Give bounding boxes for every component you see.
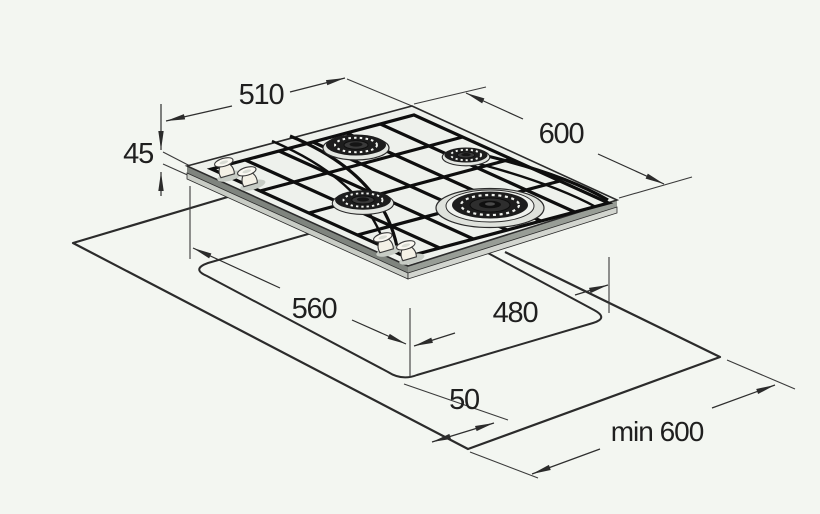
ext-min600-left [470,452,538,478]
burner-back-right [442,147,490,165]
dim-50-line [432,423,494,442]
burner-front-left [332,190,393,214]
dim-510-seg1 [166,106,232,121]
burner-cap [461,153,470,156]
dim-min600-seg1 [532,449,600,474]
burner-cap [357,197,369,201]
burner-cap [350,142,363,146]
dim-480-seg1 [414,333,455,346]
burner-back-left [323,135,389,161]
dim-560-seg2 [352,320,406,344]
dim-510-label: 510 [239,79,284,111]
dim-510-seg2 [290,78,345,92]
dim-50-label: 50 [449,384,479,416]
ext-600-top [414,87,486,104]
dim-600-seg1 [466,93,523,119]
dim-min600-seg2 [712,385,775,408]
dim-600-label: 600 [539,118,584,150]
diagram-canvas: 510 600 45 560 480 50 min 600 [0,0,820,514]
dim-600-seg2 [598,154,664,184]
dim-min600-label: min 600 [611,416,704,447]
ext-510-right [347,79,412,106]
installation-diagram: 510 600 45 560 480 50 min 600 [0,0,820,514]
ext-min600-right [727,360,795,389]
wok-burner-cap-highlight [485,202,495,205]
dim-480-label: 480 [493,297,538,329]
leader-45-top [163,152,192,167]
dim-45-label: 45 [123,138,153,170]
dim-560-label: 560 [292,293,337,325]
burner-wok-front-right [436,189,544,228]
